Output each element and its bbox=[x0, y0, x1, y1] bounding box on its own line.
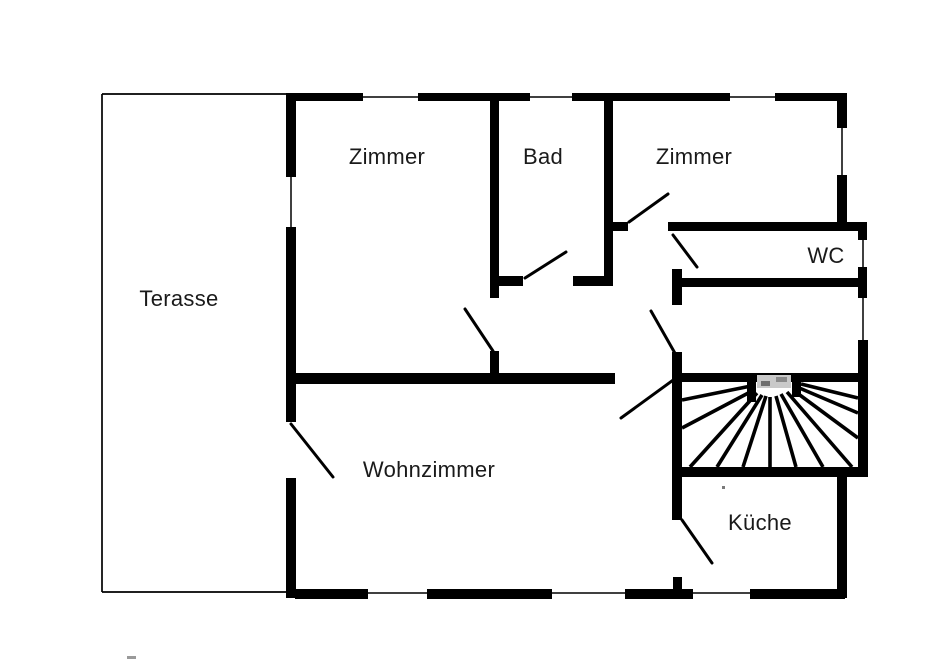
wall-segment bbox=[672, 269, 682, 305]
door-swing-line bbox=[629, 194, 668, 222]
wall-segment bbox=[775, 93, 847, 101]
floorplan-drawing bbox=[0, 0, 925, 667]
wall-segment bbox=[573, 276, 613, 286]
door-swing-line bbox=[525, 252, 566, 278]
wall-segment bbox=[682, 467, 867, 477]
wall-segment bbox=[858, 340, 868, 477]
wall-segment bbox=[680, 278, 858, 287]
wall-segment bbox=[604, 95, 613, 286]
wall-segment bbox=[625, 589, 693, 599]
stair-tread-line bbox=[776, 396, 796, 467]
wall-segment bbox=[837, 472, 847, 598]
wall-segment bbox=[498, 276, 523, 286]
door-swing-line bbox=[673, 235, 697, 267]
door-swing-line bbox=[291, 424, 333, 477]
scan-noise-mark bbox=[776, 377, 787, 382]
door-swing-line bbox=[651, 311, 676, 355]
scan-noise-mark bbox=[127, 656, 136, 659]
wall-segment bbox=[837, 95, 847, 128]
wall-segment bbox=[490, 93, 499, 298]
wall-segment bbox=[418, 93, 530, 101]
wall-segment bbox=[858, 222, 867, 240]
wall-segment bbox=[837, 175, 847, 222]
scan-noise-mark bbox=[761, 381, 770, 386]
stair-tread-line bbox=[787, 392, 852, 467]
wall-segment bbox=[286, 373, 615, 384]
scan-noise-mark bbox=[722, 486, 725, 489]
door-swing-line bbox=[621, 378, 676, 418]
wall-segment bbox=[673, 577, 682, 598]
wall-segment bbox=[287, 93, 363, 101]
wall-segment bbox=[750, 589, 845, 599]
wall-segment bbox=[286, 478, 296, 598]
wall-segment bbox=[668, 222, 867, 231]
wall-segment bbox=[427, 589, 552, 599]
wall-segment bbox=[295, 589, 368, 599]
door-swing-line bbox=[682, 520, 712, 563]
wall-segment bbox=[286, 227, 296, 422]
door-swing-line bbox=[465, 309, 493, 351]
wall-segment bbox=[858, 267, 867, 298]
floorplan-page: Terasse Zimmer Bad Zimmer WC Wohnzimmer … bbox=[0, 0, 925, 667]
wall-segment bbox=[572, 93, 730, 101]
wall-segment bbox=[286, 93, 296, 177]
wall-segment bbox=[604, 222, 628, 231]
